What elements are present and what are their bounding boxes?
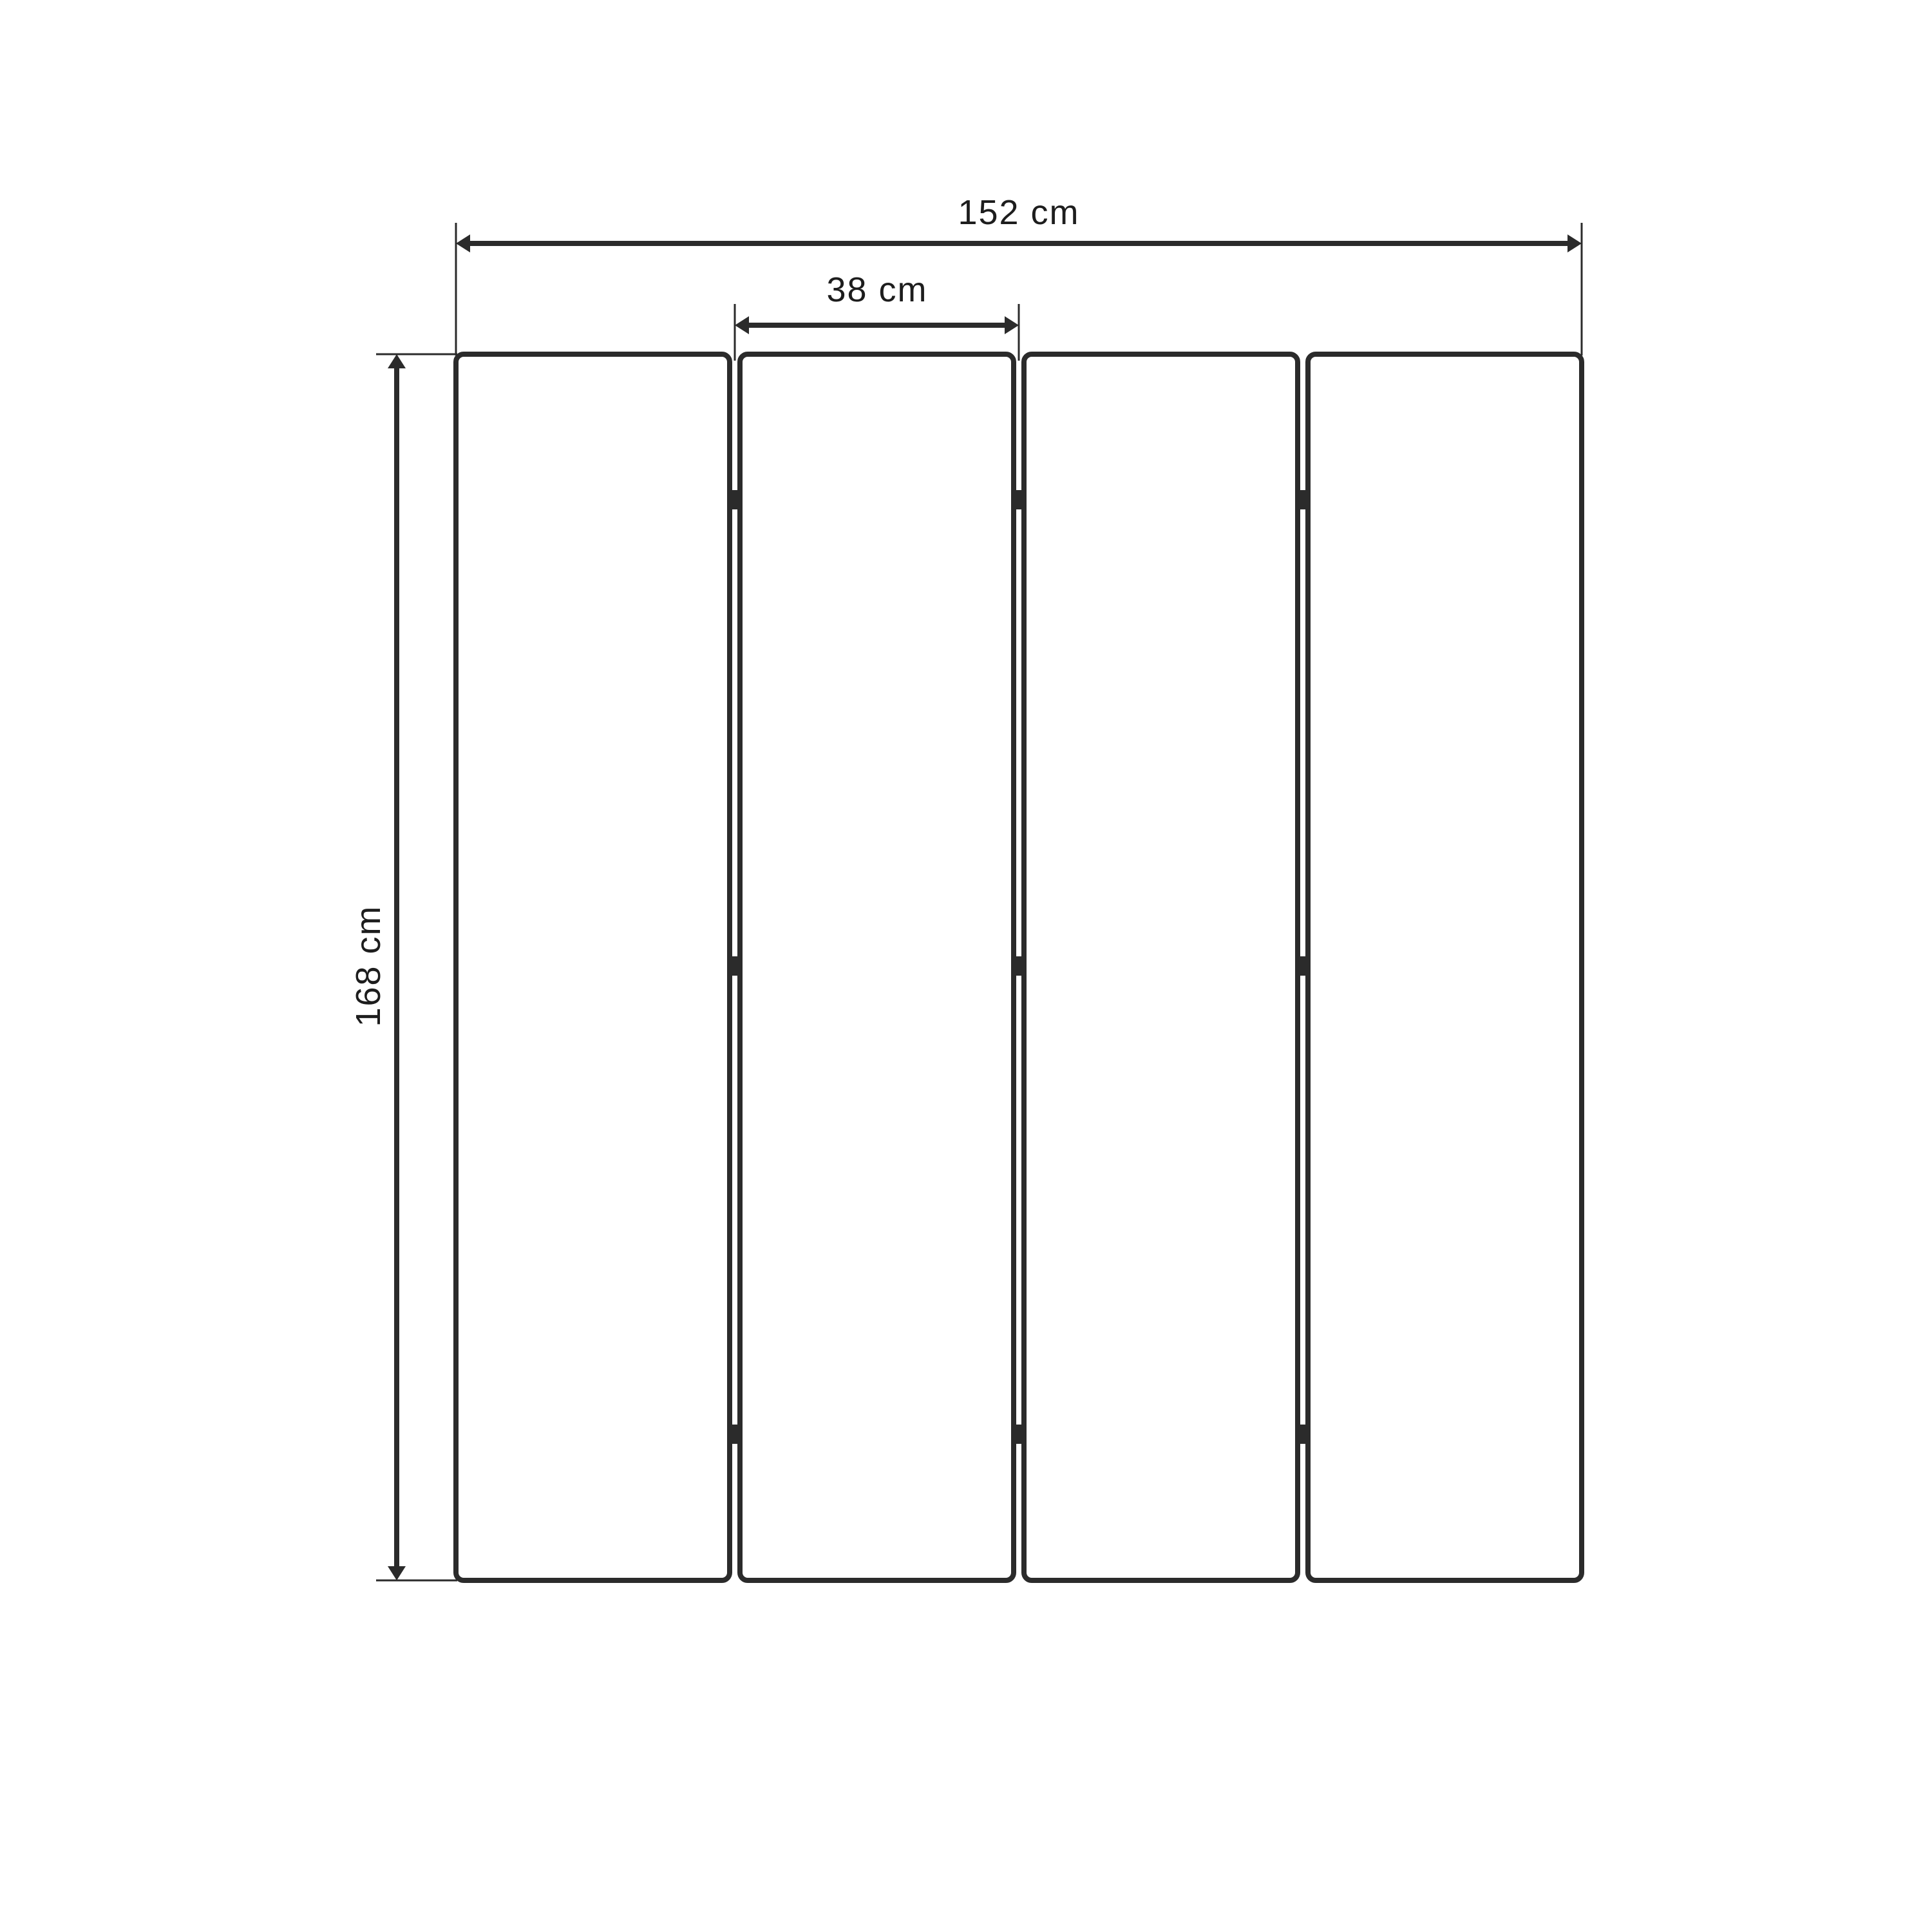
- dim-height-arrowhead-top-icon: [388, 354, 406, 368]
- panel-2: [740, 354, 1014, 1580]
- dim-total-width-label: 152 cm: [958, 193, 1079, 232]
- dim-panel-width: 38 cm: [735, 270, 1019, 361]
- hinge-gap2-middle: [1012, 956, 1026, 976]
- dim-height: 168 cm: [349, 354, 457, 1580]
- hinge-gap3-top: [1296, 490, 1310, 509]
- hinge-gap1-top: [728, 490, 742, 509]
- hinge-gap2-bottom: [1012, 1425, 1026, 1444]
- dim-total-width-arrowhead-right-icon: [1567, 234, 1582, 252]
- panel-3: [1024, 354, 1298, 1580]
- hinge-gap1-middle: [728, 956, 742, 976]
- hinge-gap3-bottom: [1296, 1425, 1310, 1444]
- dim-panel-width-label: 38 cm: [826, 270, 927, 309]
- hinge-gap2-top: [1012, 490, 1026, 509]
- panel-1: [456, 354, 730, 1580]
- panel-4: [1308, 354, 1582, 1580]
- hinge-gap1-bottom: [728, 1425, 742, 1444]
- dim-total-width-arrowhead-left-icon: [456, 234, 470, 252]
- dim-panel-width-arrowhead-left-icon: [735, 316, 749, 334]
- dim-panel-width-arrowhead-right-icon: [1005, 316, 1019, 334]
- dim-height-label: 168 cm: [349, 905, 388, 1027]
- hinge-gap3-middle: [1296, 956, 1310, 976]
- dim-height-arrowhead-bottom-icon: [388, 1566, 406, 1580]
- dimension-diagram: 152 cm 38 cm 168 cm: [0, 0, 1932, 1932]
